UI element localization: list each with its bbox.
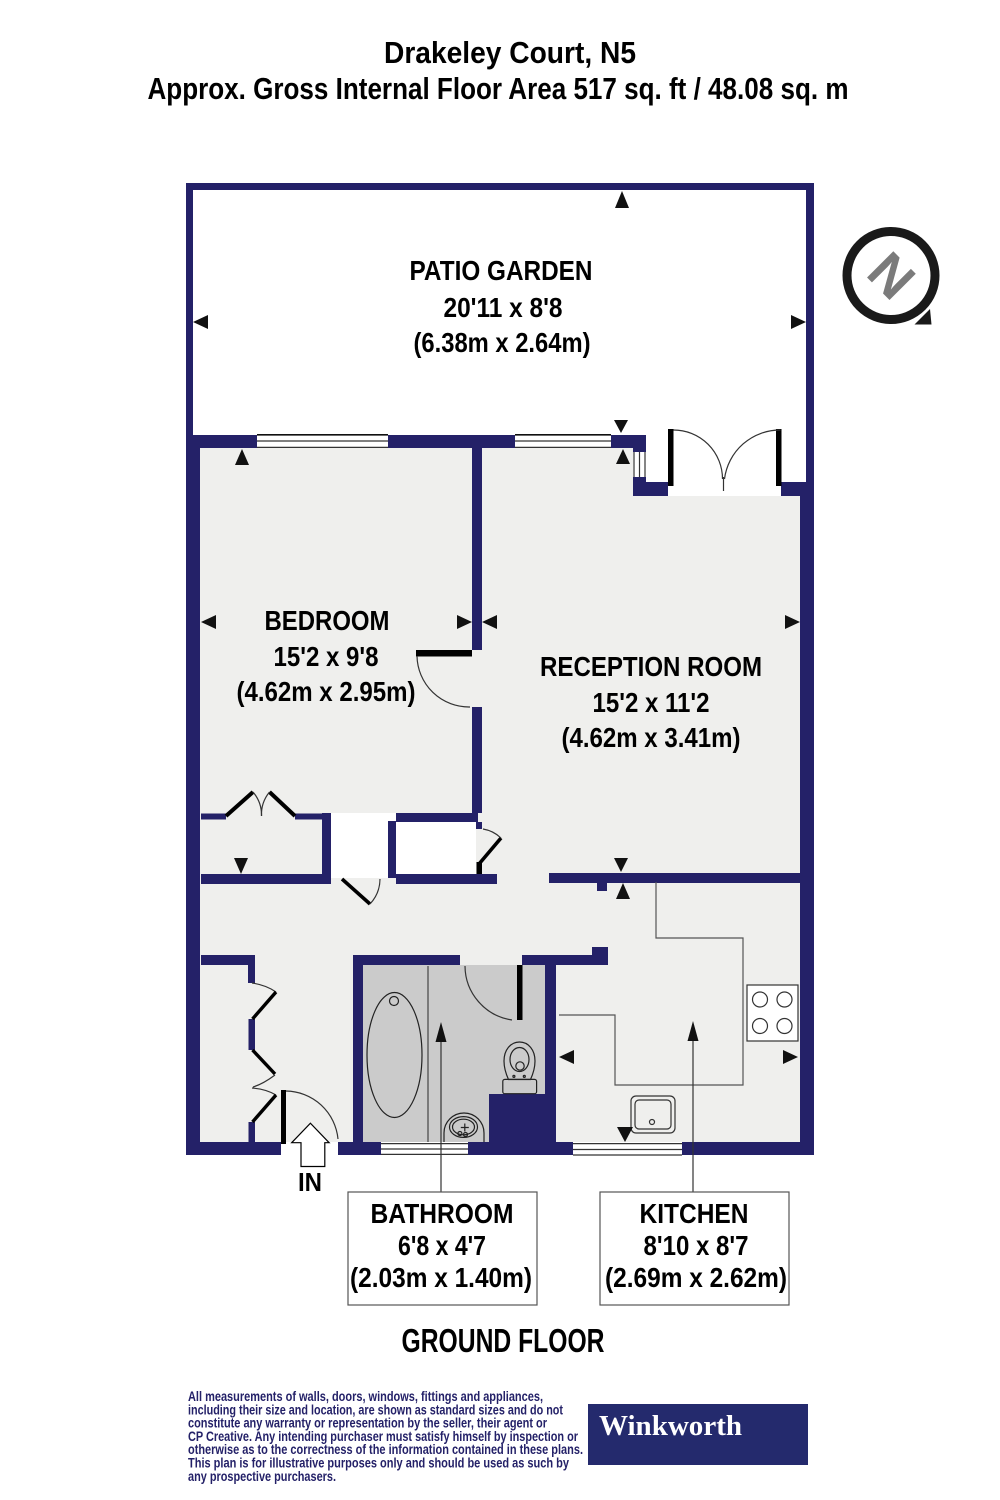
svg-text:20'11 x 8'8: 20'11 x 8'8	[444, 292, 563, 323]
svg-text:(6.38m x 2.64m): (6.38m x 2.64m)	[414, 327, 591, 358]
svg-text:15'2 x 9'8: 15'2 x 9'8	[274, 641, 379, 672]
svg-text:KITCHEN: KITCHEN	[640, 1198, 749, 1229]
svg-text:IN: IN	[298, 1167, 322, 1197]
svg-text:(4.62m x 3.41m): (4.62m x 3.41m)	[562, 722, 741, 753]
svg-text:GROUND FLOOR: GROUND FLOOR	[402, 1322, 605, 1359]
svg-text:(2.03m x 1.40m): (2.03m x 1.40m)	[350, 1262, 532, 1293]
svg-text:Winkworth: Winkworth	[599, 1410, 742, 1442]
svg-text:8'10 x 8'7: 8'10 x 8'7	[644, 1230, 749, 1261]
svg-text:BATHROOM: BATHROOM	[371, 1198, 514, 1229]
svg-text:(2.69m x 2.62m): (2.69m x 2.62m)	[605, 1262, 787, 1293]
svg-text:RECEPTION ROOM: RECEPTION ROOM	[540, 651, 762, 682]
svg-text:PATIO GARDEN: PATIO GARDEN	[410, 255, 593, 286]
svg-text:any prospective purchasers.: any prospective purchasers.	[188, 1469, 336, 1484]
svg-text:6'8 x 4'7: 6'8 x 4'7	[398, 1230, 486, 1261]
svg-text:BEDROOM: BEDROOM	[265, 605, 390, 636]
svg-text:Approx. Gross Internal Floor A: Approx. Gross Internal Floor Area 517 sq…	[148, 72, 849, 106]
svg-text:(4.62m x 2.95m): (4.62m x 2.95m)	[237, 676, 416, 707]
svg-text:Drakeley Court, N5: Drakeley Court, N5	[384, 36, 636, 70]
svg-text:15'2 x 11'2: 15'2 x 11'2	[593, 687, 710, 718]
